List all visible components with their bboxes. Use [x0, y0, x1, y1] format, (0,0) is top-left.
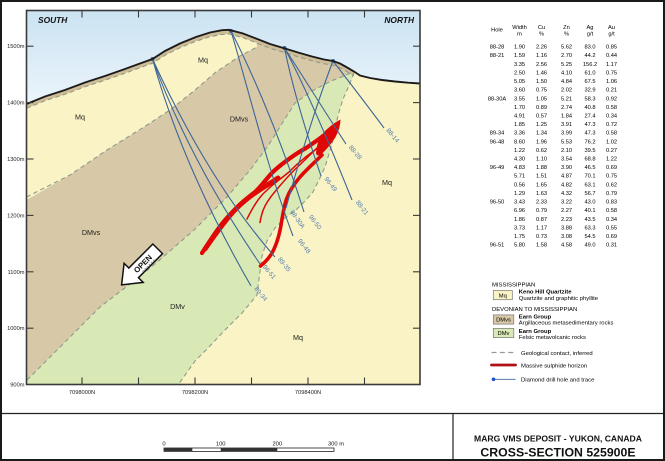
svg-text:1.46: 1.46	[536, 70, 547, 76]
svg-text:83.0: 83.0	[584, 45, 595, 51]
svg-text:1300m: 1300m	[7, 157, 25, 163]
svg-text:DMv: DMv	[498, 331, 510, 337]
svg-text:0.62: 0.62	[536, 148, 547, 154]
svg-text:Hole: Hole	[491, 28, 503, 34]
svg-text:1.17: 1.17	[536, 225, 547, 231]
svg-text:0.55: 0.55	[606, 225, 617, 231]
svg-text:2.26: 2.26	[536, 45, 547, 51]
svg-text:5.21: 5.21	[561, 96, 572, 102]
svg-text:76.2: 76.2	[584, 139, 595, 145]
svg-text:2.33: 2.33	[536, 200, 547, 206]
svg-text:27.4: 27.4	[584, 114, 595, 120]
svg-text:3.91: 3.91	[561, 122, 572, 128]
svg-text:Mq: Mq	[75, 113, 85, 122]
svg-text:88-21: 88-21	[490, 53, 505, 59]
svg-text:61.0: 61.0	[584, 70, 595, 76]
svg-text:1.06: 1.06	[606, 79, 617, 85]
svg-text:63.1: 63.1	[584, 182, 595, 188]
svg-text:3.36: 3.36	[514, 131, 525, 137]
svg-text:Width: Width	[512, 25, 527, 31]
svg-text:1.63: 1.63	[536, 191, 547, 197]
svg-text:0.34: 0.34	[606, 217, 617, 223]
svg-text:1000m: 1000m	[7, 326, 25, 332]
svg-text:1.25: 1.25	[536, 122, 547, 128]
svg-text:40.8: 40.8	[584, 105, 595, 111]
svg-text:2.27: 2.27	[561, 208, 572, 214]
svg-text:0.75: 0.75	[536, 88, 547, 94]
svg-text:DMv: DMv	[170, 302, 185, 311]
svg-text:88-30A: 88-30A	[488, 96, 507, 102]
svg-text:0.79: 0.79	[606, 191, 617, 197]
svg-text:56.7: 56.7	[584, 191, 595, 197]
svg-text:DMvs: DMvs	[230, 115, 249, 124]
svg-text:1.86: 1.86	[514, 217, 525, 223]
svg-text:3.73: 3.73	[514, 225, 525, 231]
svg-text:3.08: 3.08	[561, 234, 572, 240]
svg-text:3.43: 3.43	[514, 200, 525, 206]
svg-text:49.0: 49.0	[584, 243, 595, 249]
svg-text:%: %	[539, 32, 544, 38]
svg-text:3.90: 3.90	[561, 165, 572, 171]
svg-text:MARG VMS DEPOSIT - YUKON, CANA: MARG VMS DEPOSIT - YUKON, CANADA	[474, 434, 642, 444]
svg-text:100: 100	[216, 442, 226, 448]
svg-text:47.3: 47.3	[584, 122, 595, 128]
svg-text:0.31: 0.31	[606, 243, 617, 249]
svg-text:0.69: 0.69	[606, 234, 617, 240]
svg-text:DEVONIAN TO MISSISSIPPIAN: DEVONIAN TO MISSISSIPPIAN	[492, 307, 577, 313]
svg-text:300 m: 300 m	[328, 442, 344, 448]
svg-text:4.91: 4.91	[514, 114, 525, 120]
svg-text:0.72: 0.72	[606, 122, 617, 128]
svg-text:7098400N: 7098400N	[295, 390, 321, 396]
svg-text:7098200N: 7098200N	[182, 390, 208, 396]
svg-text:NORTH: NORTH	[384, 15, 415, 25]
svg-text:0.83: 0.83	[606, 200, 617, 206]
svg-text:0.58: 0.58	[606, 208, 617, 214]
svg-text:MISSISSIPPIAN: MISSISSIPPIAN	[492, 283, 535, 289]
svg-text:1.51: 1.51	[536, 174, 547, 180]
svg-text:0.75: 0.75	[606, 174, 617, 180]
svg-text:2.50: 2.50	[514, 70, 525, 76]
svg-text:3.60: 3.60	[514, 88, 525, 94]
svg-text:Mq: Mq	[293, 333, 303, 342]
svg-text:0.21: 0.21	[606, 88, 617, 94]
svg-text:156.2: 156.2	[583, 62, 597, 68]
svg-text:0.56: 0.56	[514, 182, 525, 188]
svg-text:Mq: Mq	[382, 178, 392, 187]
svg-text:0.27: 0.27	[606, 148, 617, 154]
svg-text:1.85: 1.85	[514, 122, 525, 128]
svg-text:6.96: 6.96	[514, 208, 525, 214]
svg-text:46.5: 46.5	[584, 165, 595, 171]
svg-text:0.75: 0.75	[606, 70, 617, 76]
svg-text:96-48: 96-48	[490, 139, 505, 145]
svg-text:54.5: 54.5	[584, 234, 595, 240]
svg-text:1.70: 1.70	[514, 105, 525, 111]
svg-text:96-49: 96-49	[490, 165, 505, 171]
svg-text:0.79: 0.79	[536, 208, 547, 214]
svg-text:4.87: 4.87	[561, 174, 572, 180]
svg-text:63.3: 63.3	[584, 225, 595, 231]
svg-text:4.32: 4.32	[561, 191, 572, 197]
svg-text:4.30: 4.30	[514, 157, 525, 163]
svg-text:3.35: 3.35	[514, 62, 525, 68]
svg-text:1.96: 1.96	[536, 139, 547, 145]
svg-text:96-50: 96-50	[490, 200, 505, 206]
svg-text:5.71: 5.71	[514, 174, 525, 180]
svg-text:2.10: 2.10	[561, 148, 572, 154]
svg-text:4.58: 4.58	[561, 243, 572, 249]
svg-text:96-51: 96-51	[490, 243, 505, 249]
svg-text:5.62: 5.62	[561, 45, 572, 51]
svg-text:2.56: 2.56	[536, 62, 547, 68]
svg-text:Cu: Cu	[538, 25, 545, 31]
svg-text:0.87: 0.87	[536, 217, 547, 223]
svg-text:1.59: 1.59	[514, 53, 525, 59]
svg-text:Zn: Zn	[563, 25, 570, 31]
svg-text:1500m: 1500m	[7, 44, 25, 50]
svg-text:g/t: g/t	[608, 32, 615, 38]
svg-text:2.23: 2.23	[561, 217, 572, 223]
svg-text:0.85: 0.85	[606, 45, 617, 51]
svg-text:32.9: 32.9	[584, 88, 595, 94]
svg-text:1.16: 1.16	[536, 53, 547, 59]
svg-text:1200m: 1200m	[7, 213, 25, 219]
svg-text:4.82: 4.82	[561, 182, 572, 188]
svg-text:1.22: 1.22	[606, 157, 617, 163]
svg-text:200: 200	[272, 442, 282, 448]
svg-text:5.05: 5.05	[514, 79, 525, 85]
svg-text:%: %	[564, 32, 569, 38]
svg-text:0.58: 0.58	[606, 105, 617, 111]
svg-text:3.55: 3.55	[514, 96, 525, 102]
svg-text:39.5: 39.5	[584, 148, 595, 154]
svg-text:1.17: 1.17	[606, 62, 617, 68]
svg-text:0.62: 0.62	[606, 182, 617, 188]
svg-text:0: 0	[162, 442, 165, 448]
svg-text:88-28: 88-28	[490, 45, 505, 51]
svg-text:DMvs: DMvs	[82, 228, 101, 237]
svg-text:0.34: 0.34	[606, 114, 617, 120]
svg-text:0.58: 0.58	[606, 131, 617, 137]
svg-text:0.92: 0.92	[606, 96, 617, 102]
svg-text:70.1: 70.1	[584, 174, 595, 180]
svg-text:7098000N: 7098000N	[69, 390, 95, 396]
svg-text:40.1: 40.1	[584, 208, 595, 214]
svg-text:0.73: 0.73	[536, 234, 547, 240]
svg-text:2.74: 2.74	[561, 105, 572, 111]
svg-text:Ag: Ag	[587, 25, 594, 31]
svg-text:3.88: 3.88	[561, 225, 572, 231]
svg-text:89-34: 89-34	[490, 131, 505, 137]
svg-text:DMvs: DMvs	[496, 318, 511, 324]
svg-text:44.2: 44.2	[584, 53, 595, 59]
svg-text:Quartzite and graphitic phylli: Quartzite and graphitic phyllite	[519, 296, 599, 302]
svg-text:8.60: 8.60	[514, 139, 525, 145]
svg-text:0.69: 0.69	[606, 165, 617, 171]
svg-text:1.50: 1.50	[536, 79, 547, 85]
svg-text:0.44: 0.44	[606, 53, 617, 59]
svg-text:m: m	[517, 32, 522, 38]
svg-text:67.5: 67.5	[584, 79, 595, 85]
svg-text:3.22: 3.22	[561, 200, 572, 206]
svg-text:Mq: Mq	[198, 56, 208, 65]
svg-text:1.22: 1.22	[514, 148, 525, 154]
svg-text:Argillaceous metasedimentary r: Argillaceous metasedimentary rocks	[519, 320, 614, 326]
svg-text:4.84: 4.84	[561, 79, 572, 85]
svg-text:4.83: 4.83	[514, 165, 525, 171]
svg-text:1.29: 1.29	[514, 191, 525, 197]
svg-text:0.89: 0.89	[536, 105, 547, 111]
svg-text:3.54: 3.54	[561, 157, 572, 163]
svg-text:0.57: 0.57	[536, 114, 547, 120]
svg-text:Mq: Mq	[499, 293, 507, 299]
svg-text:1.02: 1.02	[606, 139, 617, 145]
svg-text:47.3: 47.3	[584, 131, 595, 137]
svg-text:1.65: 1.65	[536, 182, 547, 188]
svg-text:Keno Hill Quartzite: Keno Hill Quartzite	[519, 290, 572, 296]
svg-text:2.70: 2.70	[561, 53, 572, 59]
svg-text:Geological contact, inferred: Geological contact, inferred	[521, 351, 593, 357]
svg-text:1.05: 1.05	[536, 96, 547, 102]
svg-text:68.8: 68.8	[584, 157, 595, 163]
svg-text:1.10: 1.10	[536, 157, 547, 163]
svg-text:1.88: 1.88	[536, 165, 547, 171]
svg-text:1400m: 1400m	[7, 101, 25, 107]
svg-text:2.02: 2.02	[561, 88, 572, 94]
svg-text:CROSS-SECTION 525900E: CROSS-SECTION 525900E	[480, 446, 635, 460]
svg-text:Au: Au	[608, 25, 615, 31]
svg-text:43.0: 43.0	[584, 200, 595, 206]
svg-text:1.75: 1.75	[514, 234, 525, 240]
svg-text:1.34: 1.34	[536, 131, 547, 137]
svg-text:5.53: 5.53	[561, 139, 572, 145]
svg-text:Massive sulphide horizon: Massive sulphide horizon	[521, 363, 587, 369]
svg-text:58.3: 58.3	[584, 96, 595, 102]
svg-text:SOUTH: SOUTH	[38, 15, 68, 25]
svg-text:5.80: 5.80	[514, 243, 525, 249]
svg-text:Diamond drill hole and trace: Diamond drill hole and trace	[521, 378, 595, 384]
svg-text:900m: 900m	[10, 383, 24, 389]
svg-text:3.99: 3.99	[561, 131, 572, 137]
svg-text:1.58: 1.58	[536, 243, 547, 249]
svg-text:Felsic metavolcanic rocks: Felsic metavolcanic rocks	[519, 335, 586, 341]
svg-text:1.84: 1.84	[561, 114, 572, 120]
svg-text:4.10: 4.10	[561, 70, 572, 76]
svg-text:g/t: g/t	[587, 32, 594, 38]
svg-text:5.25: 5.25	[561, 62, 572, 68]
svg-text:1.90: 1.90	[514, 45, 525, 51]
svg-text:43.5: 43.5	[584, 217, 595, 223]
svg-text:1100m: 1100m	[8, 270, 25, 276]
